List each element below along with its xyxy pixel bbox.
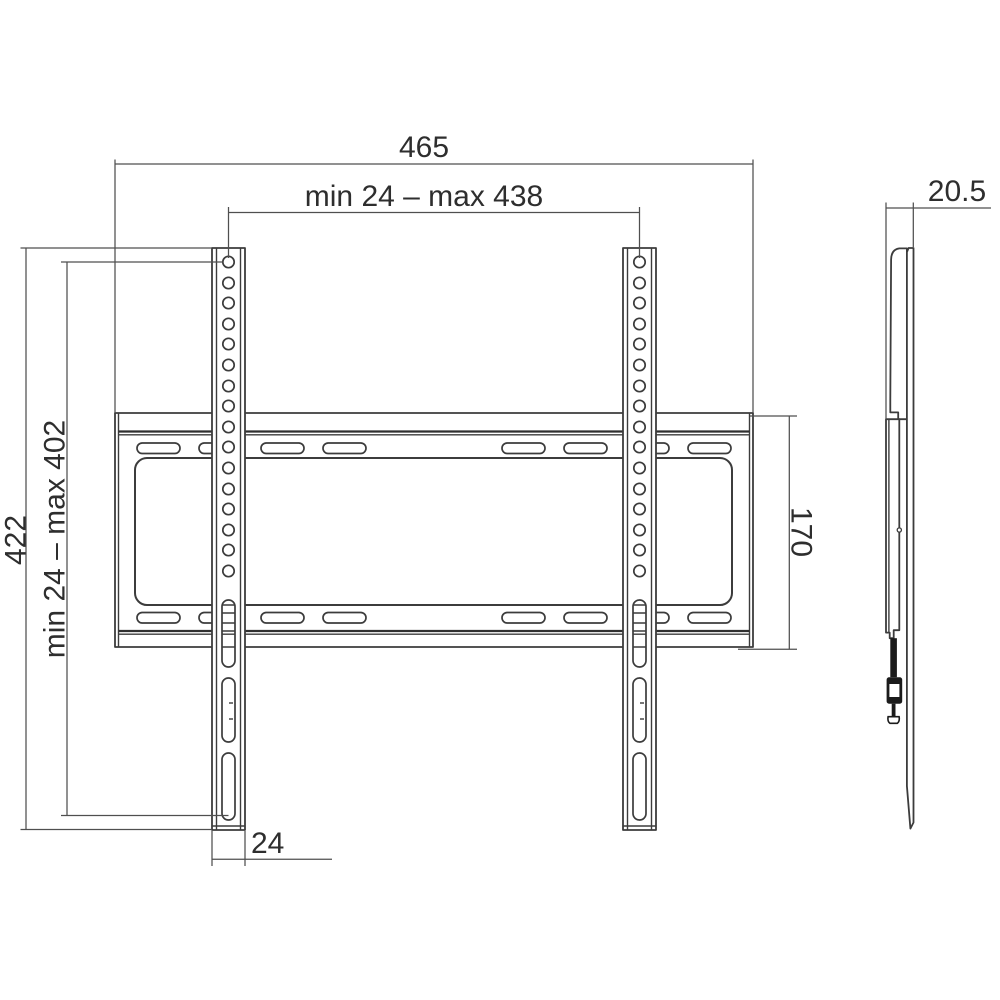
dim-mount-width-range-label: min 24 – max 438 [305, 180, 543, 213]
vesa-hole [634, 565, 645, 576]
vesa-hole [634, 338, 645, 349]
vesa-hole [634, 441, 645, 452]
drawing-page: 465 min 24 – max 438 422 min 24 – max 40… [0, 0, 1000, 1000]
vesa-hole [634, 277, 645, 288]
vesa-hole [634, 297, 645, 308]
side-pivot-dot [897, 528, 901, 532]
vesa-hole [223, 338, 234, 349]
vesa-hole [223, 503, 234, 514]
wall-plate [115, 413, 753, 647]
plate-slot [502, 613, 545, 624]
right-rail-slot-2 [633, 678, 646, 742]
front-view [115, 248, 753, 830]
plate-slot [323, 613, 366, 624]
dim-mount-width-range: min 24 – max 438 [229, 180, 640, 258]
right-rail [623, 248, 656, 830]
vesa-hole [634, 359, 645, 370]
vesa-hole [223, 565, 234, 576]
plate-slot [137, 613, 180, 624]
left-rail-slot-2 [222, 678, 235, 742]
plate-slot [564, 443, 607, 454]
plate-slot [502, 443, 545, 454]
vesa-hole [634, 462, 645, 473]
left-rail-slot-3 [222, 753, 235, 820]
vesa-hole [634, 524, 645, 535]
plate-slot [323, 443, 366, 454]
vesa-hole [223, 359, 234, 370]
vesa-hole [223, 380, 234, 391]
dim-plate-height-label: 170 [785, 507, 818, 557]
dim-overall-width: 465 [115, 131, 753, 413]
vesa-hole [223, 544, 234, 555]
side-lock-nut-body [889, 684, 899, 697]
right-rail-slot-3 [633, 753, 646, 820]
dim-overall-height-label: 422 [0, 515, 33, 565]
vesa-hole [634, 400, 645, 411]
dim-mount-height-range-label: min 24 – max 402 [39, 420, 72, 658]
plate-slot [261, 443, 304, 454]
side-rail-strip [907, 248, 914, 829]
plate-slot [137, 443, 180, 454]
vesa-hole [223, 297, 234, 308]
plate-slot [261, 613, 304, 624]
vesa-hole [223, 462, 234, 473]
dim-profile-depth-label: 20.5 [928, 175, 986, 208]
vesa-hole [223, 277, 234, 288]
side-hook-profile [890, 248, 907, 419]
side-screw-cap [888, 717, 899, 724]
vesa-hole [634, 421, 645, 432]
dim-rail-width-label: 24 [251, 827, 284, 860]
vesa-hole [634, 483, 645, 494]
side-screw-stem [892, 704, 896, 717]
vesa-hole [223, 483, 234, 494]
side-view [886, 248, 914, 829]
vesa-hole [223, 256, 234, 267]
vesa-hole [634, 544, 645, 555]
side-screw-shaft [890, 638, 897, 677]
plate-slot [688, 613, 731, 624]
vesa-hole [634, 256, 645, 267]
plate-slot [688, 443, 731, 454]
vesa-hole [223, 524, 234, 535]
plate-slot [564, 613, 607, 624]
vesa-hole [223, 318, 234, 329]
vesa-hole [634, 318, 645, 329]
left-rail [212, 248, 245, 830]
dim-overall-width-label: 465 [399, 131, 449, 164]
vesa-hole [634, 503, 645, 514]
vesa-hole [223, 421, 234, 432]
vesa-hole [223, 400, 234, 411]
dim-rail-width: 24 [212, 827, 332, 866]
dimension-drawing: 465 min 24 – max 438 422 min 24 – max 40… [0, 0, 1000, 1000]
vesa-hole [634, 380, 645, 391]
vesa-hole [223, 441, 234, 452]
